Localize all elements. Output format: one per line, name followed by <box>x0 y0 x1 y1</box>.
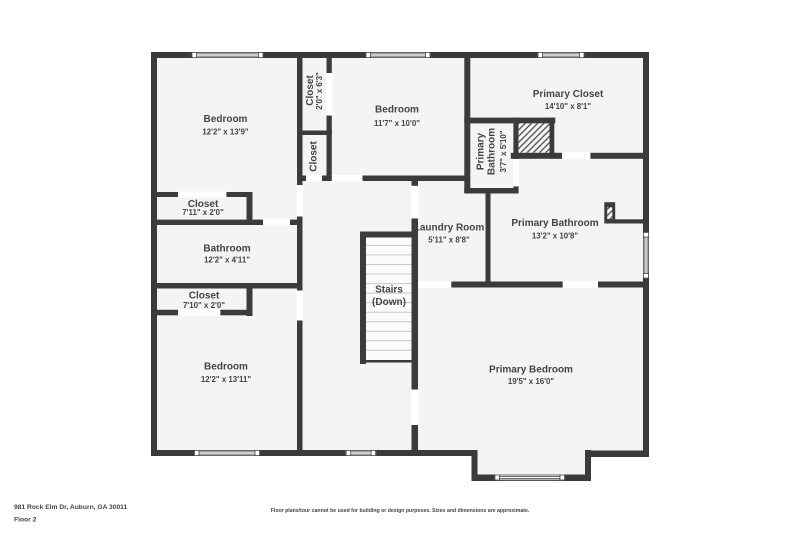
svg-text:2'0" x 6'3": 2'0" x 6'3" <box>315 72 324 110</box>
svg-text:7'10" x 2'0": 7'10" x 2'0" <box>183 301 225 310</box>
svg-text:11'7" x 10'0": 11'7" x 10'0" <box>374 119 420 128</box>
svg-text:981 Rock Elm Dr, Auburn, GA 30: 981 Rock Elm Dr, Auburn, GA 30011 <box>14 504 128 511</box>
svg-text:Floor 2: Floor 2 <box>14 517 37 524</box>
svg-text:Bedroom: Bedroom <box>204 362 248 373</box>
svg-text:Bathroom: Bathroom <box>487 128 498 175</box>
svg-text:12'2" x 13'9": 12'2" x 13'9" <box>202 128 249 137</box>
svg-text:Stairs: Stairs <box>375 285 403 296</box>
svg-text:5'11" x 8'8": 5'11" x 8'8" <box>428 236 470 245</box>
svg-text:Primary: Primary <box>476 132 487 170</box>
svg-text:12'2" x 4'11": 12'2" x 4'11" <box>204 255 250 264</box>
svg-text:Bedroom: Bedroom <box>375 105 419 116</box>
svg-text:Floor plans/tour cannot be use: Floor plans/tour cannot be used for buil… <box>271 508 530 514</box>
svg-text:3'7" x 5'10": 3'7" x 5'10" <box>499 130 508 172</box>
svg-text:(Down): (Down) <box>372 297 406 308</box>
svg-text:Closet: Closet <box>308 141 319 172</box>
svg-text:12'2" x 13'11": 12'2" x 13'11" <box>201 375 252 384</box>
svg-text:7'11" x 2'0": 7'11" x 2'0" <box>182 208 224 217</box>
svg-text:Bathroom: Bathroom <box>203 244 250 255</box>
svg-text:14'10" x 8'1": 14'10" x 8'1" <box>545 102 592 111</box>
svg-text:Primary Bathroom: Primary Bathroom <box>511 218 598 229</box>
svg-text:Primary Bedroom: Primary Bedroom <box>489 365 573 376</box>
svg-text:13'2" x 10'8": 13'2" x 10'8" <box>532 232 579 241</box>
svg-text:Bedroom: Bedroom <box>204 114 248 125</box>
svg-text:Laundry Room: Laundry Room <box>414 223 485 234</box>
svg-text:19'5" x 16'0": 19'5" x 16'0" <box>508 377 555 386</box>
svg-text:Primary Closet: Primary Closet <box>533 89 604 100</box>
